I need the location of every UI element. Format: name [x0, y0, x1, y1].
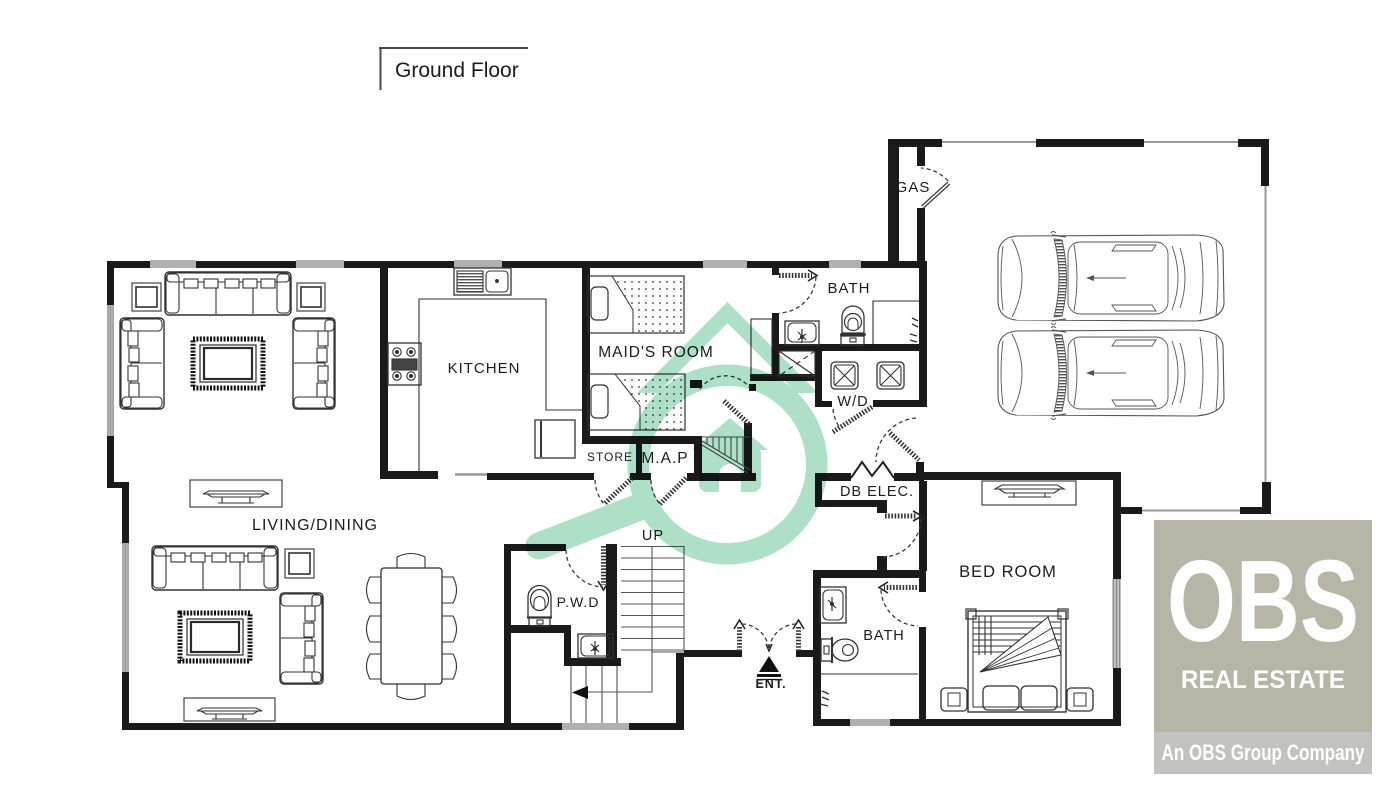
svg-text:DB ELEC.: DB ELEC. — [840, 484, 914, 500]
svg-text:STORE: STORE — [587, 450, 633, 464]
svg-text:REAL ESTATE: REAL ESTATE — [1181, 666, 1345, 694]
svg-text:An OBS Group Company: An OBS Group Company — [1162, 740, 1366, 765]
svg-text:BATH: BATH — [828, 280, 871, 297]
svg-text:LIVING/DINING: LIVING/DINING — [252, 517, 378, 534]
svg-text:BATH: BATH — [863, 628, 905, 644]
svg-text:KITCHEN: KITCHEN — [448, 360, 521, 377]
svg-text:ENT.: ENT. — [755, 677, 786, 691]
svg-text:Ground Floor: Ground Floor — [395, 59, 519, 82]
svg-text:P.W.D: P.W.D — [557, 594, 600, 610]
svg-text:BED ROOM: BED ROOM — [959, 563, 1057, 581]
svg-text:GAS: GAS — [896, 179, 931, 196]
svg-text:W/D: W/D — [837, 394, 868, 410]
svg-text:OBS: OBS — [1167, 536, 1359, 666]
